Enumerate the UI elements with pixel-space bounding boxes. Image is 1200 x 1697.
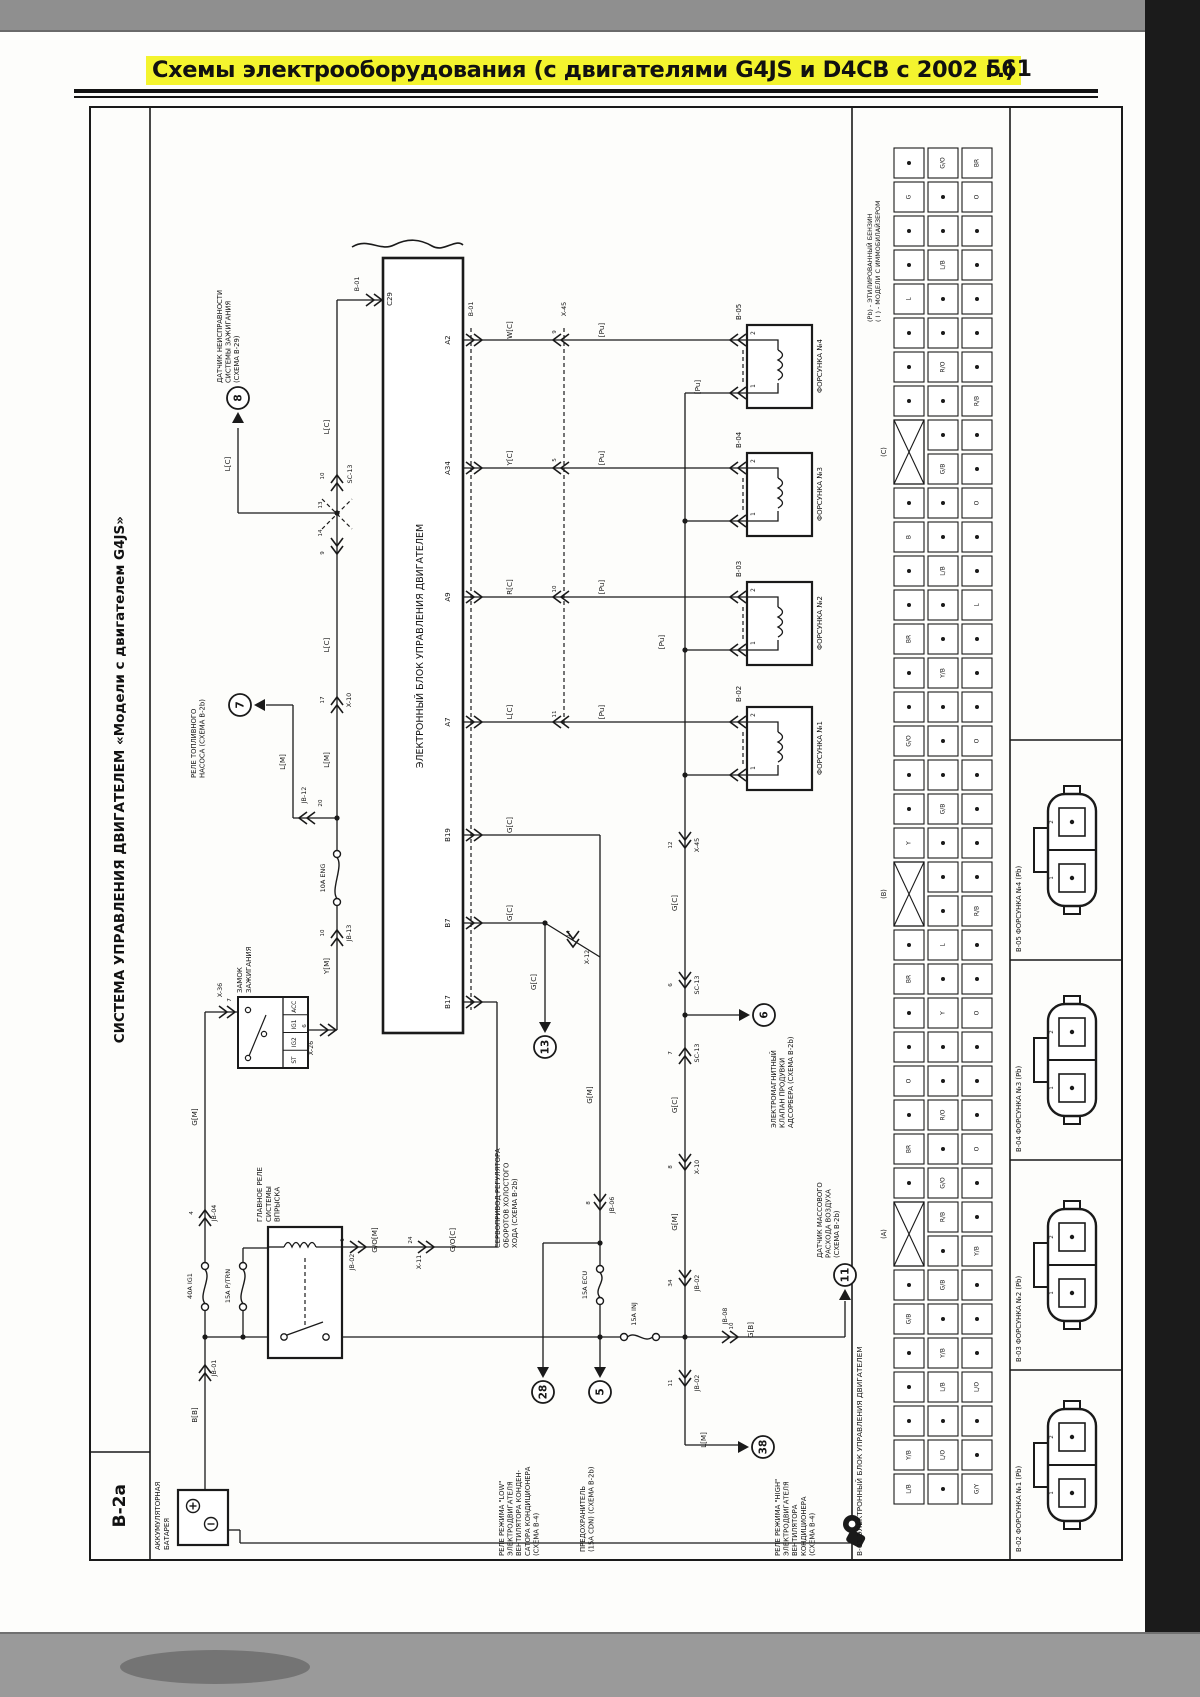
svg-text:O: O — [906, 1078, 913, 1083]
svg-text:[Pu]: [Pu] — [597, 323, 606, 338]
svg-text:15A INJ: 15A INJ — [630, 1302, 638, 1326]
svg-text:L/O: L/O — [940, 1450, 947, 1460]
svg-text:L/B: L/B — [940, 260, 947, 269]
svg-text:АККУМУЛЯТОРНАЯБАТАРЕЯ: АККУМУЛЯТОРНАЯБАТАРЕЯ — [154, 1482, 171, 1550]
svg-text:[Pu]: [Pu] — [693, 380, 702, 395]
callout-38: 38РЕЛЕ РЕЖИМА "HIGH"ЭЛЕКТРОДВИГАТЕЛЯВЕНТ… — [738, 1436, 816, 1556]
svg-text:6: 6 — [759, 1011, 771, 1018]
svg-text:O: O — [974, 194, 981, 199]
svg-text:L[M]: L[M] — [322, 752, 331, 768]
svg-text:G/B: G/B — [940, 1280, 947, 1291]
svg-text:ЭЛЕКТРОМАГНИТНЫЙКЛАПАН ПРОДУВК: ЭЛЕКТРОМАГНИТНЫЙКЛАПАН ПРОДУВКИАДСОРБЕРА… — [769, 1036, 795, 1128]
injector-box: 21B-02ФОРСУНКА №1 — [735, 686, 824, 790]
svg-text:2: 2 — [751, 331, 757, 335]
svg-text:JB-06: JB-06 — [608, 1197, 616, 1215]
svg-text:O: O — [974, 1010, 981, 1015]
svg-text:G[C]: G[C] — [505, 905, 514, 921]
svg-text:R/O: R/O — [940, 361, 947, 372]
svg-text:2: 2 — [1049, 1235, 1055, 1239]
manual-page: Схемы электрооборудования (с двигателями… — [0, 0, 1200, 1697]
svg-text:X-11: X-11 — [415, 1255, 423, 1270]
svg-text:B-01: B-01 — [353, 277, 361, 292]
svg-text:L/B: L/B — [940, 1382, 947, 1391]
svg-text:G[M]: G[M] — [585, 1086, 594, 1104]
svg-text:W[C]: W[C] — [505, 321, 514, 339]
battery: АККУМУЛЯТОРНАЯБАТАРЕЯ — [154, 1482, 228, 1550]
svg-text:ФОРСУНКА №4: ФОРСУНКА №4 — [816, 339, 824, 393]
injector-box: 21B-04ФОРСУНКА №3 — [735, 431, 824, 536]
svg-text:G/O: G/O — [940, 157, 947, 169]
svg-text:1: 1 — [1049, 1491, 1055, 1495]
svg-text:L[C]: L[C] — [223, 456, 232, 471]
svg-text:РЕЛЕ ТОПЛИВНОГОНАСОСА (СХЕМА B: РЕЛЕ ТОПЛИВНОГОНАСОСА (СХЕМА B-2b) — [190, 699, 207, 778]
svg-text:[Pu]: [Pu] — [597, 580, 606, 595]
svg-text:B-04 ФОРСУНКА №3 (Pb): B-04 ФОРСУНКА №3 (Pb) — [1015, 1066, 1023, 1152]
svg-text:X-26: X-26 — [307, 1041, 315, 1056]
svg-text:1: 1 — [1049, 876, 1055, 880]
svg-text:G[C]: G[C] — [670, 1097, 679, 1113]
svg-text:5: 5 — [595, 1388, 607, 1395]
callout-28: 28РЕЛЕ РЕЖИМА "LOW"ЭЛЕКТРОДВИГАТЕЛЯВЕНТИ… — [498, 1367, 554, 1556]
svg-text:[Pu]: [Pu] — [597, 451, 606, 466]
svg-text:38: 38 — [758, 1440, 770, 1455]
injector-connector-card: B-05 ФОРСУНКА №4 (Pb)21 — [1010, 740, 1122, 952]
svg-text:L/B: L/B — [940, 566, 947, 575]
svg-text:11: 11 — [840, 1268, 852, 1283]
svg-text:Y[C]: Y[C] — [505, 450, 514, 466]
svg-text:ФОРСУНКА №1: ФОРСУНКА №1 — [816, 721, 824, 775]
svg-text:B19: B19 — [444, 828, 452, 842]
svg-text:L[C]: L[C] — [322, 637, 331, 652]
svg-text:12: 12 — [668, 841, 674, 848]
svg-text:X-10: X-10 — [693, 1160, 701, 1175]
svg-text:[Pu]: [Pu] — [657, 635, 666, 650]
svg-text:ДАТЧИК МАССОВОГОРАСХОДА ВОЗДУХ: ДАТЧИК МАССОВОГОРАСХОДА ВОЗДУХА(СХЕМА B-… — [816, 1182, 841, 1258]
svg-text:JB-13: JB-13 — [345, 925, 353, 943]
svg-text:B[B]: B[B] — [190, 1407, 199, 1423]
svg-text:ACC: ACC — [292, 1001, 298, 1013]
svg-text:JB-08: JB-08 — [721, 1308, 729, 1326]
svg-text:20: 20 — [318, 799, 324, 807]
svg-text:G[M]: G[M] — [670, 1213, 679, 1231]
svg-text:SC-13: SC-13 — [346, 465, 354, 484]
svg-text:X-12: X-12 — [583, 950, 591, 965]
svg-text:(C): (C) — [880, 447, 888, 457]
svg-text:7: 7 — [668, 1051, 674, 1055]
svg-text:ST: ST — [292, 1056, 298, 1064]
svg-text:B7: B7 — [444, 918, 452, 927]
svg-text:10: 10 — [729, 1322, 735, 1330]
svg-text:JB-12: JB-12 — [300, 787, 308, 805]
svg-text:C29: C29 — [386, 292, 394, 306]
svg-text:СЕРВОПРИВОД РЕГУЛЯТОРАОБОРОТОВ: СЕРВОПРИВОД РЕГУЛЯТОРАОБОРОТОВ ХОЛОСТОГО… — [494, 1148, 519, 1248]
svg-text:L[M]: L[M] — [699, 1432, 708, 1448]
svg-text:13: 13 — [318, 501, 324, 509]
callout-8: 8ДАТЧИК НЕИСПРАВНОСТИСИСТЕМЫ ЗАЖИГАНИЯ(С… — [216, 290, 249, 423]
svg-text:L[C]: L[C] — [505, 704, 514, 719]
ecm-box: ЭЛЕКТРОННЫЙ БЛОК УПРАВЛЕНИЯ ДВИГАТЕЛЕМC2… — [352, 240, 463, 1033]
svg-text:17: 17 — [320, 696, 326, 704]
svg-text:R[C]: R[C] — [505, 579, 514, 595]
svg-text:SC-13: SC-13 — [693, 1044, 701, 1063]
svg-text:Y/B: Y/B — [940, 668, 947, 679]
svg-text:G/B: G/B — [940, 464, 947, 475]
svg-text:1: 1 — [751, 641, 757, 645]
svg-text:2: 2 — [1049, 820, 1055, 824]
svg-text:Y/B: Y/B — [940, 1348, 947, 1359]
ecm-pinout-panel: B-01 ЭЛЕКТРОННЫЙ БЛОК УПРАВЛЕНИЯ ДВИГАТЕ… — [855, 148, 992, 1556]
svg-text:B-01 ЭЛЕКТРОННЫЙ БЛОК УПРАВЛЕ: B-01 ЭЛЕКТРОННЫЙ БЛОК УПРАВЛЕНИЯ ДВИГАТЕ… — [855, 1346, 864, 1556]
svg-text:IG1: IG1 — [292, 1019, 298, 1029]
svg-text:G/B: G/B — [940, 804, 947, 815]
svg-text:B-02: B-02 — [735, 686, 743, 702]
svg-text:G/Y: G/Y — [974, 1484, 981, 1495]
injector-connector-card: B-02 ФОРСУНКА №1 (Pb)21 — [1010, 1370, 1122, 1552]
svg-text:34: 34 — [668, 1279, 674, 1287]
svg-text:2: 2 — [751, 713, 757, 717]
svg-text:15A ECU: 15A ECU — [581, 1271, 589, 1299]
svg-text:A2: A2 — [444, 335, 452, 344]
svg-text:G/O[M]: G/O[M] — [370, 1227, 379, 1253]
injector-connector-card: B-03 ФОРСУНКА №2 (Pb)21 — [1010, 1160, 1122, 1362]
svg-text:G[C]: G[C] — [670, 895, 679, 911]
svg-text:A7: A7 — [444, 717, 452, 726]
svg-text:15A P/TRN: 15A P/TRN — [224, 1269, 232, 1303]
svg-text:1: 1 — [751, 766, 757, 770]
svg-text:10A ENG: 10A ENG — [319, 864, 327, 893]
svg-text:(A): (A) — [880, 1229, 888, 1239]
svg-text:X-45: X-45 — [693, 838, 701, 853]
svg-text:10: 10 — [320, 472, 326, 480]
svg-text:ГЛАВНОЕ РЕЛЕСИСТЕМЫВПРЫСКА: ГЛАВНОЕ РЕЛЕСИСТЕМЫВПРЫСКА — [256, 1167, 282, 1222]
svg-text:O: O — [974, 500, 981, 505]
svg-text:B-02 ФОРСУНКА №1 (Pb): B-02 ФОРСУНКА №1 (Pb) — [1015, 1466, 1023, 1552]
svg-text:B17: B17 — [444, 995, 452, 1009]
svg-text:G/O: G/O — [940, 1177, 947, 1189]
svg-text:B-03: B-03 — [735, 561, 743, 577]
svg-text:L/O: L/O — [974, 1382, 981, 1392]
svg-text:Y/B: Y/B — [906, 1450, 913, 1461]
svg-text:5: 5 — [552, 458, 558, 462]
svg-text:BR: BR — [974, 159, 981, 167]
svg-text:Y: Y — [940, 1011, 947, 1016]
svg-text:R/O: R/O — [940, 1109, 947, 1120]
svg-text:1: 1 — [751, 384, 757, 388]
svg-text:Y[M]: Y[M] — [322, 958, 331, 975]
svg-text:11: 11 — [668, 1379, 674, 1387]
svg-text:ЗАМОКЗАЖИГАНИЯ: ЗАМОКЗАЖИГАНИЯ — [236, 946, 253, 993]
svg-text:Y: Y — [906, 841, 913, 846]
svg-text:9: 9 — [320, 551, 326, 555]
svg-text:2: 2 — [751, 459, 757, 463]
callout-6: 6ЭЛЕКТРОМАГНИТНЫЙКЛАПАН ПРОДУВКИАДСОРБЕР… — [739, 1004, 795, 1128]
svg-text:(Pb) - ЭТИЛИРОВАННЫЙ БЕНЗИН( I: (Pb) - ЭТИЛИРОВАННЫЙ БЕНЗИН( I ) - МОДЕЛ… — [865, 201, 882, 322]
svg-text:ПРЕДОХРАНИТЕЛЬ(15A CDN) (СХЕМА: ПРЕДОХРАНИТЕЛЬ(15A CDN) (СХЕМА B-2b) — [579, 1466, 596, 1552]
svg-text:ФОРСУНКА №2: ФОРСУНКА №2 — [816, 596, 824, 650]
svg-text:JB-02: JB-02 — [693, 1375, 701, 1393]
svg-text:4: 4 — [189, 1211, 195, 1215]
svg-text:O: O — [974, 1146, 981, 1151]
wiring-diagram: 40A IG115A P/TRN10A ENG15A ECU15A INJЭЛЕ… — [0, 0, 1200, 1697]
callout-5: 5ПРЕДОХРАНИТЕЛЬ(15A CDN) (СХЕМА B-2b) — [579, 1367, 611, 1552]
svg-text:X-45: X-45 — [560, 302, 568, 317]
svg-text:10: 10 — [320, 929, 326, 937]
main-relay: ГЛАВНОЕ РЕЛЕСИСТЕМЫВПРЫСКА — [256, 1167, 342, 1358]
svg-text:6: 6 — [302, 1024, 308, 1028]
svg-text:14: 14 — [566, 930, 572, 938]
injector-box: 21B-05ФОРСУНКА №4 — [735, 304, 824, 408]
callout-11: 11ДАТЧИК МАССОВОГОРАСХОДА ВОЗДУХА(СХЕМА … — [816, 1182, 856, 1300]
svg-text:O: O — [974, 738, 981, 743]
svg-text:1: 1 — [1049, 1291, 1055, 1295]
svg-text:40A IG1: 40A IG1 — [186, 1273, 194, 1299]
svg-text:28: 28 — [538, 1385, 550, 1400]
svg-text:B: B — [906, 535, 913, 539]
svg-text:G[M]: G[M] — [190, 1108, 199, 1126]
svg-text:L[C]: L[C] — [322, 419, 331, 434]
svg-text:JB-04: JB-04 — [210, 1205, 218, 1223]
svg-text:(B): (B) — [880, 889, 888, 899]
svg-text:ФОРСУНКА №3: ФОРСУНКА №3 — [816, 467, 824, 521]
svg-text:G: G — [906, 194, 913, 199]
svg-text:2: 2 — [1049, 1030, 1055, 1034]
svg-text:8: 8 — [668, 1165, 674, 1169]
svg-text:G[C]: G[C] — [505, 817, 514, 833]
svg-text:G[C]: G[C] — [529, 974, 538, 990]
svg-text:9: 9 — [552, 330, 558, 334]
svg-text:7: 7 — [227, 998, 233, 1002]
svg-text:B-03 ФОРСУНКА №2 (Pb): B-03 ФОРСУНКА №2 (Pb) — [1015, 1276, 1023, 1362]
svg-text:JB-01: JB-01 — [210, 1360, 218, 1378]
svg-text:B-05: B-05 — [735, 304, 743, 320]
svg-text:JB-02: JB-02 — [348, 1254, 356, 1272]
ignition-switch: ACCIG1IG2STЗАМОКЗАЖИГАНИЯ — [236, 946, 308, 1068]
svg-text:10: 10 — [552, 585, 558, 593]
svg-text:ЭЛЕКТРОННЫЙ БЛОК УПРАВЛЕНИЯ ДВ: ЭЛЕКТРОННЫЙ БЛОК УПРАВЛЕНИЯ ДВИГАТЕЛЕМ — [414, 524, 426, 768]
svg-text:8: 8 — [586, 1201, 592, 1205]
svg-text:2: 2 — [751, 588, 757, 592]
svg-text:B-04: B-04 — [735, 431, 743, 448]
svg-text:IG2: IG2 — [292, 1037, 298, 1047]
svg-text:РЕЛЕ РЕЖИМА "LOW"ЭЛЕКТРОДВИГАТ: РЕЛЕ РЕЖИМА "LOW"ЭЛЕКТРОДВИГАТЕЛЯВЕНТИЛЯ… — [498, 1466, 540, 1556]
svg-text:G/O: G/O — [906, 735, 913, 747]
injector-box: 21B-03ФОРСУНКА №2 — [735, 561, 824, 665]
svg-text:BR: BR — [906, 975, 913, 983]
svg-text:G/O[C]: G/O[C] — [448, 1228, 457, 1252]
svg-text:11: 11 — [552, 710, 558, 718]
svg-text:JB-02: JB-02 — [693, 1275, 701, 1293]
svg-text:A34: A34 — [444, 461, 452, 475]
svg-text:R/B: R/B — [974, 396, 981, 406]
svg-text:14: 14 — [318, 529, 324, 537]
svg-text:L/B: L/B — [906, 1484, 913, 1493]
svg-text:1: 1 — [1049, 1086, 1055, 1090]
svg-text:1: 1 — [751, 512, 757, 516]
svg-text:R/B: R/B — [974, 906, 981, 916]
callout-13: 13СЕРВОПРИВОД РЕГУЛЯТОРАОБОРОТОВ ХОЛОСТО… — [494, 1022, 556, 1248]
injector-connector-card: B-04 ФОРСУНКА №3 (Pb)21 — [1010, 960, 1122, 1152]
svg-text:G/B: G/B — [906, 1314, 913, 1325]
svg-text:BR: BR — [906, 635, 913, 643]
svg-text:B-05 ФОРСУНКА №4 (Pb): B-05 ФОРСУНКА №4 (Pb) — [1015, 866, 1023, 952]
svg-text:L[M]: L[M] — [278, 754, 287, 770]
svg-text:BR: BR — [906, 1145, 913, 1153]
svg-text:G[B]: G[B] — [746, 1322, 755, 1338]
svg-text:[Pu]: [Pu] — [597, 705, 606, 720]
svg-text:B-01: B-01 — [467, 302, 475, 317]
svg-text:A9: A9 — [444, 592, 452, 601]
svg-text:Y/B: Y/B — [974, 1246, 981, 1257]
svg-text:X-10: X-10 — [345, 693, 353, 708]
svg-text:7: 7 — [235, 701, 247, 708]
svg-text:6: 6 — [668, 983, 674, 987]
svg-text:13: 13 — [540, 1040, 552, 1055]
svg-text:1: 1 — [340, 1238, 346, 1242]
svg-text:SC-13: SC-13 — [693, 976, 701, 995]
svg-text:ДАТЧИК НЕИСПРАВНОСТИСИСТЕМЫ ЗА: ДАТЧИК НЕИСПРАВНОСТИСИСТЕМЫ ЗАЖИГАНИЯ(СХ… — [216, 290, 241, 383]
svg-text:2: 2 — [1049, 1435, 1055, 1439]
callout-7: 7РЕЛЕ ТОПЛИВНОГОНАСОСА (СХЕМА B-2b) — [190, 694, 265, 778]
svg-text:X-36: X-36 — [216, 983, 224, 998]
svg-text:8: 8 — [233, 394, 245, 401]
svg-text:РЕЛЕ РЕЖИМА "HIGH"ЭЛЕКТРОДВИГА: РЕЛЕ РЕЖИМА "HIGH"ЭЛЕКТРОДВИГАТЕЛЯВЕНТИЛ… — [774, 1479, 816, 1556]
svg-text:24: 24 — [408, 1236, 414, 1244]
svg-text:R/B: R/B — [940, 1212, 947, 1222]
